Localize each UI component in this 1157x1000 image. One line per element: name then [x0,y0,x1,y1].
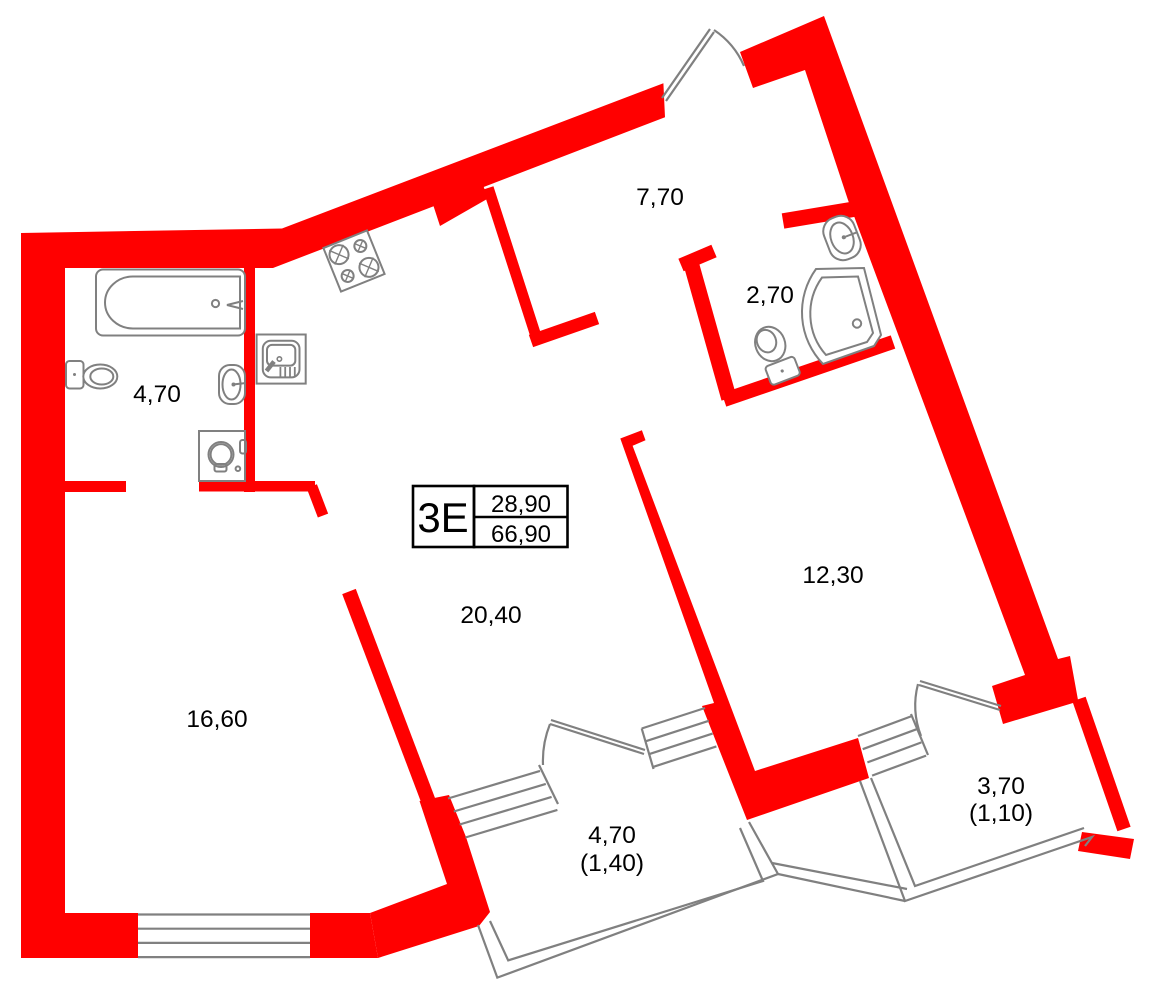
svg-text:7,70: 7,70 [636,184,684,211]
svg-text:66,90: 66,90 [491,521,551,548]
svg-text:20,40: 20,40 [460,602,521,629]
svg-text:(1,10): (1,10) [969,800,1033,827]
svg-text:16,60: 16,60 [186,706,247,733]
svg-text:4,70: 4,70 [133,381,181,408]
svg-text:4,70: 4,70 [588,822,636,849]
svg-text:(1,40): (1,40) [580,850,644,877]
svg-text:12,30: 12,30 [802,562,863,589]
svg-text:3Е: 3Е [417,494,468,541]
svg-text:28,90: 28,90 [491,491,551,518]
svg-text:3,70: 3,70 [977,773,1025,800]
svg-text:2,70: 2,70 [746,282,794,309]
